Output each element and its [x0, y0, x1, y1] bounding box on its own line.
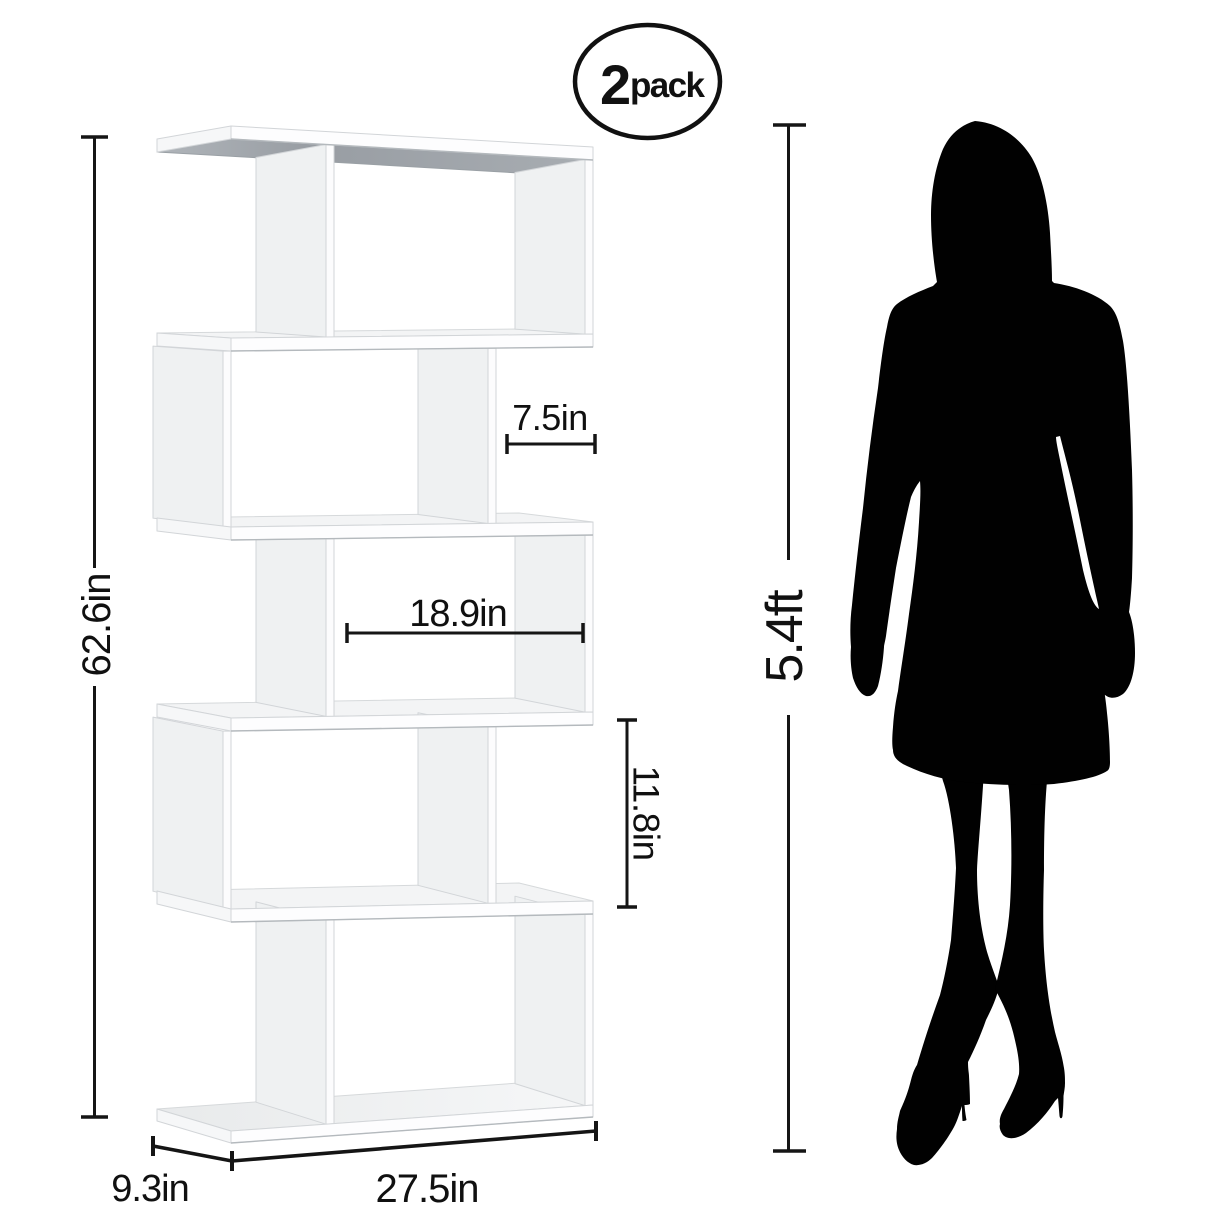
- svg-text:11.8in: 11.8in: [626, 765, 667, 860]
- svg-text:62.6in: 62.6in: [75, 574, 119, 677]
- svg-text:pack: pack: [630, 66, 706, 105]
- svg-text:2: 2: [600, 53, 630, 116]
- svg-text:7.5in: 7.5in: [512, 397, 588, 438]
- svg-text:5.4ft: 5.4ft: [756, 589, 814, 683]
- svg-text:18.9in: 18.9in: [409, 593, 507, 635]
- svg-text:9.3in: 9.3in: [111, 1168, 188, 1210]
- svg-text:27.5in: 27.5in: [376, 1167, 479, 1211]
